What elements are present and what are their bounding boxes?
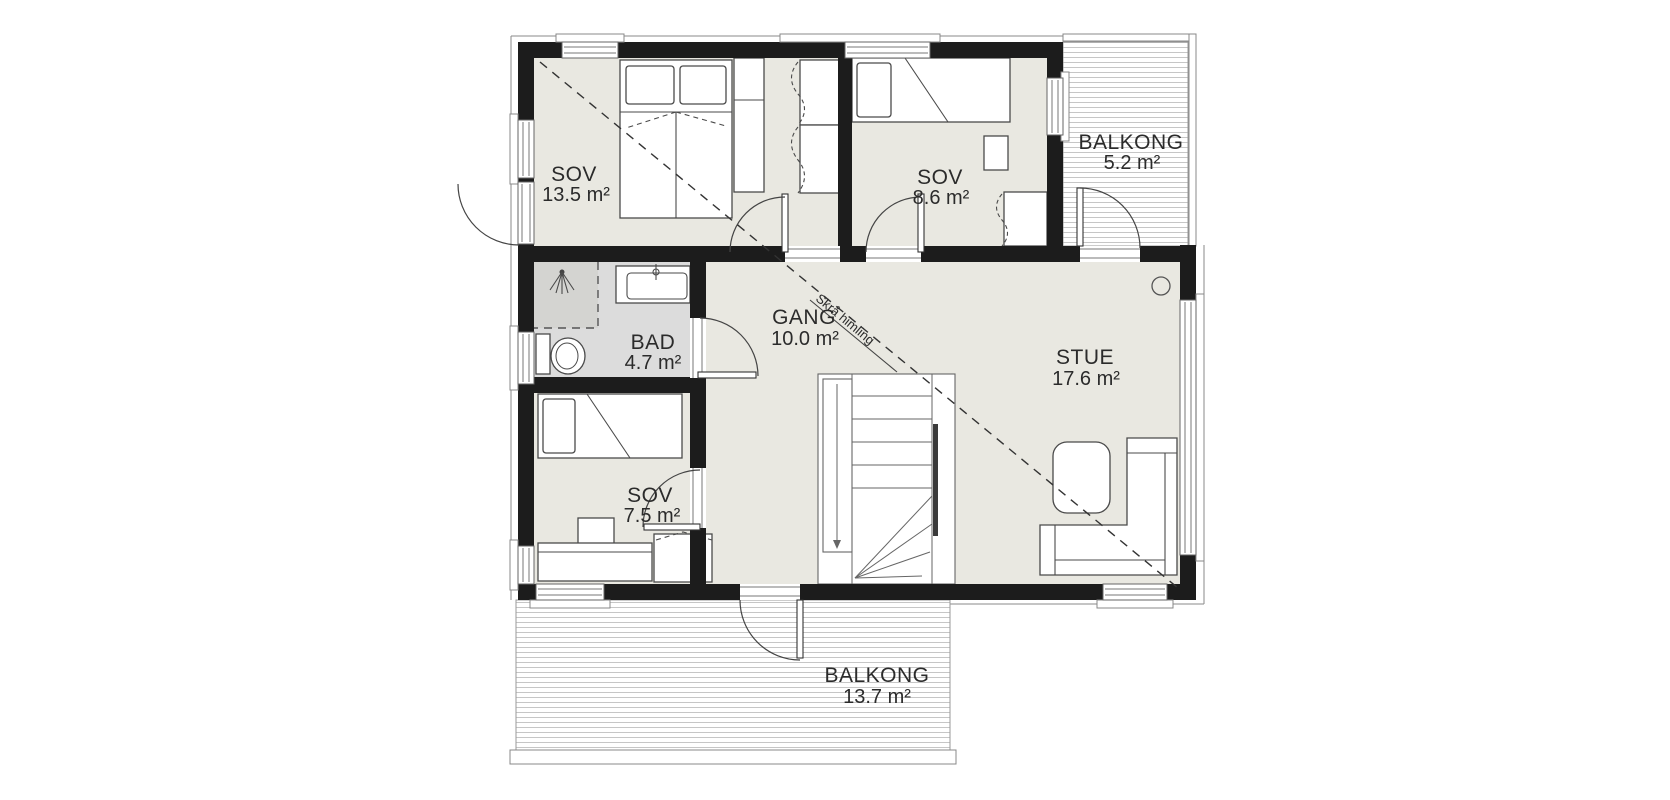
window-left-sov-13-5 — [518, 120, 534, 178]
window-left-bad — [518, 332, 534, 384]
sink — [616, 264, 690, 303]
wall-between-bedrooms — [838, 58, 852, 246]
window-left-sov-7-5 — [518, 546, 534, 584]
window-bottom-sov-7-5 — [536, 584, 604, 600]
pillow — [543, 399, 575, 453]
area-balkong-bottom: 13.7 m² — [843, 686, 911, 708]
door-opening-balcony-top — [1080, 246, 1140, 262]
door-entrance — [518, 182, 534, 244]
area-stue: 17.6 m² — [1052, 368, 1120, 390]
wardrobe — [800, 60, 840, 125]
balcony-top-railing-top — [1063, 34, 1196, 41]
area-bad: 4.7 m² — [625, 352, 682, 374]
window-right-stue — [1180, 300, 1196, 555]
window-top-sov-8-6 — [845, 42, 930, 58]
label-sov-13-5: SOV — [551, 163, 597, 186]
balcony-top-railing-right — [1189, 34, 1196, 246]
label-bad: BAD — [631, 331, 676, 354]
door-opening-balcony-bottom — [740, 584, 800, 600]
label-balkong-bottom: BALKONG — [824, 664, 929, 687]
wall-bad-gang — [690, 262, 706, 584]
wall-bad-sov-7-5 — [534, 377, 690, 393]
nightstand — [984, 136, 1008, 170]
area-balkong-top: 5.2 m² — [1104, 152, 1161, 174]
door-opening-sov-13-5 — [785, 246, 840, 262]
stair-handrail — [933, 424, 938, 536]
label-gang: GANG — [772, 306, 836, 329]
shower-zone — [534, 262, 598, 328]
pillow — [680, 66, 726, 104]
wardrobe — [800, 125, 840, 193]
pillow — [857, 63, 891, 117]
pillow — [626, 66, 674, 104]
floor-plan-canvas: Skrå himling SOV 13.5 m² SOV 8.6 m² BAD … — [0, 0, 1670, 800]
area-sov-7-5: 7.5 m² — [624, 505, 681, 527]
label-sov-8-6: SOV — [917, 166, 963, 189]
desk — [578, 518, 614, 544]
window-bottom-stue — [1103, 584, 1167, 600]
area-gang: 10.0 m² — [771, 328, 839, 350]
closet — [734, 58, 764, 192]
door-opening-sov-7-5 — [690, 468, 706, 528]
floor-plan-page: Skrå himling SOV 13.5 m² SOV 8.6 m² BAD … — [0, 0, 1670, 800]
label-balkong-top: BALKONG — [1078, 131, 1183, 154]
window-sov-8-6-balcony — [1047, 78, 1063, 135]
armchair — [1053, 442, 1110, 513]
window-top-sov-13-5 — [562, 42, 618, 58]
wardrobe — [1004, 192, 1047, 246]
area-sov-8-6: 8.6 m² — [913, 187, 970, 209]
area-sov-13-5: 13.5 m² — [542, 184, 610, 206]
label-sov-7-5: SOV — [627, 484, 673, 507]
bench — [538, 543, 652, 581]
balcony-bottom-fascia — [510, 750, 956, 764]
wall-bottom — [518, 584, 1196, 600]
label-stue: STUE — [1056, 346, 1114, 369]
door-opening-bad — [690, 318, 706, 378]
door-opening-sov-8-6 — [866, 246, 921, 262]
staircase — [818, 374, 955, 584]
